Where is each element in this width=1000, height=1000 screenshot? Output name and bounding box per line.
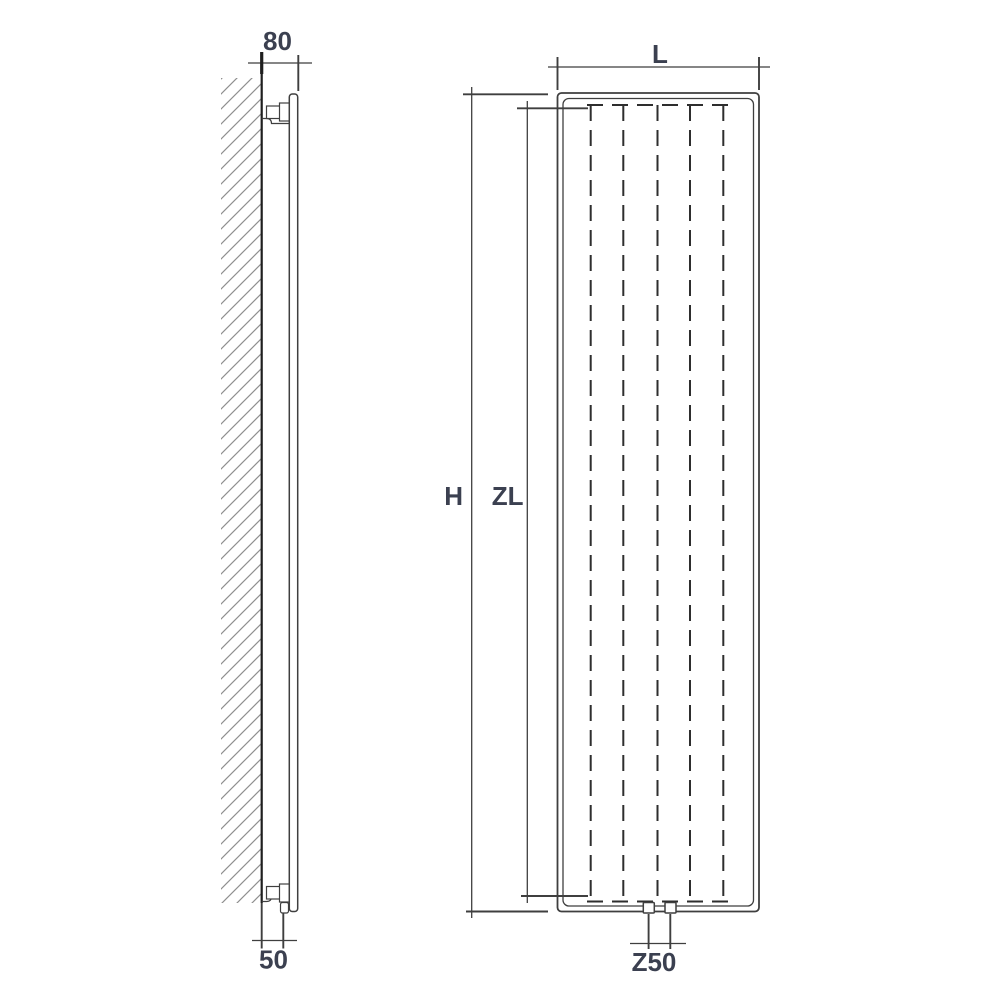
bracket-clamp bbox=[280, 884, 291, 902]
mounting-bracket-top bbox=[262, 103, 290, 124]
connection-right bbox=[665, 903, 676, 914]
dimension-50-label: 50 bbox=[259, 945, 288, 975]
radiator-side-panel bbox=[289, 94, 297, 912]
radiator-dimension-drawing: 80 50 L bbox=[0, 0, 1000, 1000]
dimension-ZL-label: ZL bbox=[492, 481, 524, 511]
dimension-L: L bbox=[548, 39, 770, 90]
side-view: 80 50 bbox=[221, 26, 312, 975]
bracket-clamp bbox=[280, 103, 291, 121]
dimension-Z50-label: Z50 bbox=[632, 947, 677, 977]
dimension-Z50: Z50 bbox=[630, 914, 686, 977]
connection-left bbox=[643, 903, 654, 914]
bracket-arm bbox=[267, 106, 281, 119]
dimension-50: 50 bbox=[252, 903, 297, 975]
dimension-H-label: H bbox=[444, 481, 463, 511]
front-view: L H ZL Z50 bbox=[444, 39, 770, 977]
bracket-arm bbox=[267, 887, 281, 900]
dimension-80-label: 80 bbox=[263, 26, 292, 56]
wall-hatch bbox=[221, 78, 261, 903]
drawing-page: 80 50 L bbox=[0, 0, 1000, 1000]
mounting-bracket-bottom bbox=[262, 884, 290, 902]
pipe-stub bbox=[281, 903, 289, 914]
dimension-L-label: L bbox=[652, 39, 668, 69]
